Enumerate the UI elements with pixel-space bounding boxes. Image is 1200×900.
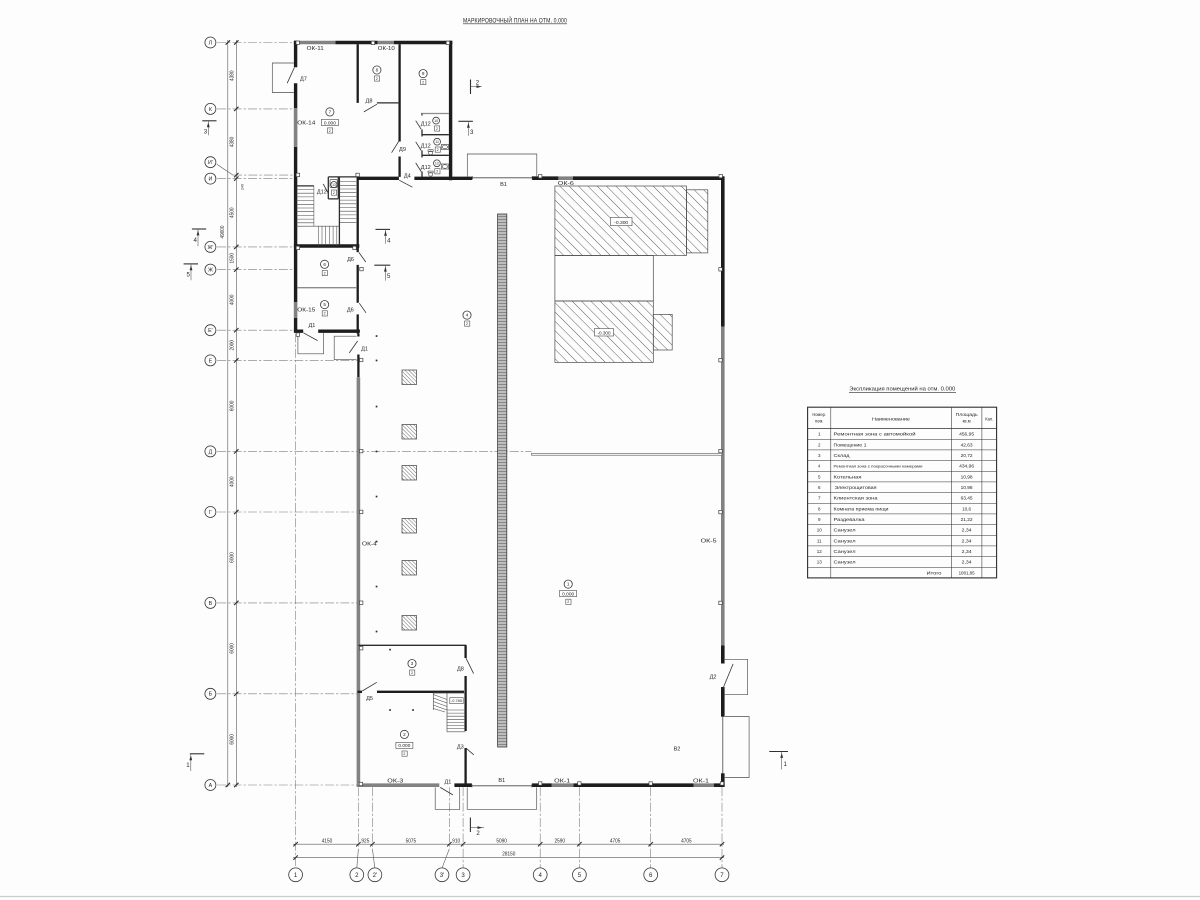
svg-text:2: 2 xyxy=(411,671,413,675)
svg-text:Наименование: Наименование xyxy=(872,416,911,421)
svg-text:Д9: Д9 xyxy=(399,147,406,153)
svg-text:Д5: Д5 xyxy=(366,696,373,702)
svg-text:9: 9 xyxy=(422,71,425,76)
svg-text:Площадь: Площадь xyxy=(956,412,978,417)
svg-text:7: 7 xyxy=(329,109,332,114)
svg-text:Д8: Д8 xyxy=(366,98,373,104)
svg-text:2,34: 2,34 xyxy=(962,560,973,565)
svg-text:Д6: Д6 xyxy=(347,257,354,263)
svg-text:1: 1 xyxy=(567,582,570,587)
svg-text:ОК-14: ОК-14 xyxy=(297,121,315,127)
svg-text:Комната приема пищи: Комната приема пищи xyxy=(834,506,890,511)
svg-text:Г: Г xyxy=(209,510,212,516)
svg-text:2: 2 xyxy=(436,170,438,174)
svg-text:4150: 4150 xyxy=(322,838,333,844)
svg-text:10,98: 10,98 xyxy=(961,474,974,479)
svg-text:И': И' xyxy=(208,160,213,166)
svg-text:Д1: Д1 xyxy=(308,323,315,329)
svg-text:6: 6 xyxy=(649,872,653,879)
svg-text:Экспликация помещений на отм.: Экспликация помещений на отм. 0.000 xyxy=(849,385,955,392)
svg-text:Электрощитовая: Электрощитовая xyxy=(835,485,878,490)
svg-text:пом.: пом. xyxy=(815,419,823,424)
svg-text:5: 5 xyxy=(578,872,582,879)
svg-text:Б: Б xyxy=(209,692,213,698)
svg-text:28150: 28150 xyxy=(502,852,515,858)
svg-text:4380: 4380 xyxy=(230,137,236,148)
svg-text:6000: 6000 xyxy=(229,643,235,654)
svg-text:2: 2 xyxy=(403,752,405,756)
svg-text:Котельная: Котельная xyxy=(834,474,863,479)
svg-text:910: 910 xyxy=(452,838,460,844)
svg-text:Раздевалка: Раздевалка xyxy=(834,517,866,522)
svg-text:1081,85: 1081,85 xyxy=(959,570,976,575)
svg-text:2: 2 xyxy=(324,312,326,316)
svg-text:2: 2 xyxy=(436,127,438,131)
svg-text:Д1: Д1 xyxy=(444,780,451,786)
svg-text:ОК-15: ОК-15 xyxy=(297,308,315,314)
svg-text:А: А xyxy=(209,783,213,789)
svg-text:Санузел: Санузел xyxy=(834,538,856,543)
svg-text:Склад: Склад xyxy=(834,453,850,458)
svg-text:0.000: 0.000 xyxy=(398,743,411,748)
svg-text:Д3: Д3 xyxy=(457,745,464,751)
svg-text:10,98: 10,98 xyxy=(961,485,974,490)
svg-text:6000: 6000 xyxy=(230,400,236,411)
svg-text:0.000: 0.000 xyxy=(562,591,575,596)
svg-text:Помещение 1: Помещение 1 xyxy=(834,442,868,447)
svg-text:Итого: Итого xyxy=(927,570,943,575)
svg-text:ОК-1: ОК-1 xyxy=(554,778,570,784)
svg-text:2': 2' xyxy=(373,872,378,879)
svg-text:Ж: Ж xyxy=(208,268,213,274)
svg-text:Клиентская зона: Клиентская зона xyxy=(834,496,879,501)
svg-text:5075: 5075 xyxy=(406,838,417,844)
svg-text:0.000: 0.000 xyxy=(324,120,337,125)
svg-text:2: 2 xyxy=(437,148,439,152)
svg-text:МАРКИРОВОЧНЫЙ ПЛАН НА ОТМ. 0.0: МАРКИРОВОЧНЫЙ ПЛАН НА ОТМ. 0.000 xyxy=(463,17,567,25)
svg-text:240: 240 xyxy=(241,184,245,190)
svg-text:1500: 1500 xyxy=(230,253,236,264)
svg-text:4000: 4000 xyxy=(229,476,235,487)
svg-text:20,72: 20,72 xyxy=(961,453,974,458)
svg-text:10,6: 10,6 xyxy=(962,506,972,511)
svg-text:Д4: Д4 xyxy=(404,173,411,179)
svg-text:Кап.: Кап. xyxy=(985,416,993,421)
svg-text:Санузел: Санузел xyxy=(834,549,856,554)
svg-text:В1: В1 xyxy=(498,778,505,784)
svg-text:2: 2 xyxy=(403,732,406,737)
svg-text:2: 2 xyxy=(324,271,326,275)
svg-text:11: 11 xyxy=(817,538,822,543)
svg-text:12: 12 xyxy=(435,162,439,166)
svg-text:Ремонтная зона с покрасочными: Ремонтная зона с покрасочными камерами xyxy=(834,465,923,469)
svg-text:4500: 4500 xyxy=(229,207,235,218)
svg-text:2,34: 2,34 xyxy=(962,549,973,554)
svg-text:ОК-4: ОК-4 xyxy=(362,542,377,548)
svg-text:Д2: Д2 xyxy=(710,675,717,681)
svg-text:3': 3' xyxy=(440,872,445,879)
svg-text:4705: 4705 xyxy=(610,838,621,844)
svg-text:Д12: Д12 xyxy=(317,190,327,196)
svg-text:Номер.: Номер. xyxy=(812,412,826,417)
svg-text:6: 6 xyxy=(323,262,326,267)
svg-text:434,96: 434,96 xyxy=(959,464,975,469)
svg-text:8: 8 xyxy=(376,68,379,73)
svg-text:4705: 4705 xyxy=(681,838,692,844)
svg-text:2: 2 xyxy=(333,191,335,195)
svg-text:В: В xyxy=(209,601,213,607)
svg-text:-0.300: -0.300 xyxy=(598,330,612,335)
svg-text:ОК-1: ОК-1 xyxy=(693,778,709,784)
svg-text:12: 12 xyxy=(817,549,823,554)
svg-text:ОК-6: ОК-6 xyxy=(558,181,574,187)
svg-text:2: 2 xyxy=(476,80,480,87)
svg-text:В1: В1 xyxy=(500,182,507,188)
svg-text:Д12: Д12 xyxy=(421,144,431,150)
svg-text:Л: Л xyxy=(209,40,213,46)
svg-text:Д6: Д6 xyxy=(347,308,354,314)
svg-text:ОК-11: ОК-11 xyxy=(307,46,324,52)
svg-text:Д7: Д7 xyxy=(300,77,307,83)
svg-text:Е': Е' xyxy=(208,328,213,334)
svg-text:Д: Д xyxy=(209,449,213,455)
svg-text:925: 925 xyxy=(361,838,369,844)
svg-text:2: 2 xyxy=(376,77,378,81)
svg-text:И: И xyxy=(208,177,212,183)
svg-text:11: 11 xyxy=(435,140,439,144)
svg-text:Санузел: Санузел xyxy=(834,560,856,565)
svg-text:Д1: Д1 xyxy=(361,347,368,353)
svg-text:10: 10 xyxy=(434,119,438,123)
svg-text:21,22: 21,22 xyxy=(961,517,974,522)
svg-text:Ж': Ж' xyxy=(207,245,213,251)
svg-text:42,63: 42,63 xyxy=(961,442,974,447)
svg-text:Е: Е xyxy=(209,358,213,364)
svg-text:10: 10 xyxy=(817,528,823,533)
svg-text:2,34: 2,34 xyxy=(962,538,973,543)
svg-text:4: 4 xyxy=(466,313,469,318)
svg-text:6000: 6000 xyxy=(229,734,235,745)
svg-text:В2: В2 xyxy=(674,747,681,753)
svg-text:Ремонтная зона с автомойкой: Ремонтная зона с автомойкой xyxy=(834,431,917,437)
svg-text:кв.м: кв.м xyxy=(963,419,971,424)
svg-text:5090: 5090 xyxy=(496,838,507,844)
svg-text:4380: 4380 xyxy=(230,70,236,81)
svg-text:5: 5 xyxy=(323,302,326,307)
svg-text:2: 2 xyxy=(329,129,331,133)
svg-text:ОК-3: ОК-3 xyxy=(387,778,403,784)
svg-text:Санузел: Санузел xyxy=(834,528,856,533)
svg-text:ОК-5: ОК-5 xyxy=(701,539,717,545)
svg-text:Д8: Д8 xyxy=(457,667,464,673)
svg-text:-0.300: -0.300 xyxy=(614,220,629,225)
svg-text:13: 13 xyxy=(817,560,823,565)
svg-text:2000: 2000 xyxy=(230,340,236,351)
svg-text:456,95: 456,95 xyxy=(959,432,975,437)
svg-text:ОК-10: ОК-10 xyxy=(378,46,395,52)
svg-text:2: 2 xyxy=(567,600,569,604)
svg-text:2,34: 2,34 xyxy=(962,528,973,533)
svg-text:Д12: Д12 xyxy=(421,121,431,127)
svg-text:4000: 4000 xyxy=(230,294,236,305)
svg-text:4: 4 xyxy=(539,872,543,879)
svg-text:63,45: 63,45 xyxy=(961,496,974,501)
svg-text:6000: 6000 xyxy=(229,552,235,563)
svg-text:-0.785: -0.785 xyxy=(451,699,462,703)
svg-text:3: 3 xyxy=(411,661,414,666)
svg-text:49000: 49000 xyxy=(220,225,226,238)
svg-text:13: 13 xyxy=(332,183,336,187)
svg-text:Д12: Д12 xyxy=(421,165,431,171)
svg-text:2590: 2590 xyxy=(555,838,566,844)
svg-text:2: 2 xyxy=(466,322,468,326)
svg-text:2: 2 xyxy=(422,80,424,84)
